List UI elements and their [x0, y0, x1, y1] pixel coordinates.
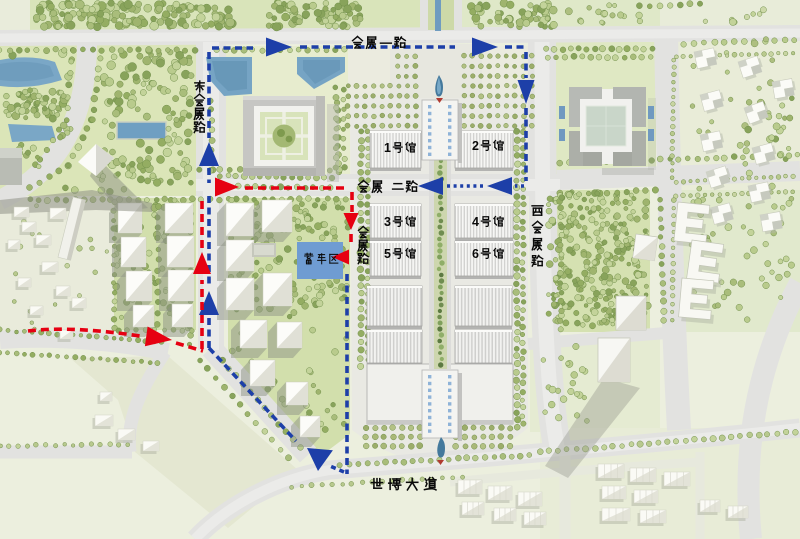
- svg-text:3: 3: [384, 215, 391, 229]
- svg-text:6: 6: [472, 247, 479, 261]
- svg-text:1: 1: [384, 141, 391, 155]
- svg-text:4: 4: [472, 215, 479, 229]
- svg-text:5: 5: [384, 247, 391, 261]
- svg-text:2: 2: [472, 139, 479, 153]
